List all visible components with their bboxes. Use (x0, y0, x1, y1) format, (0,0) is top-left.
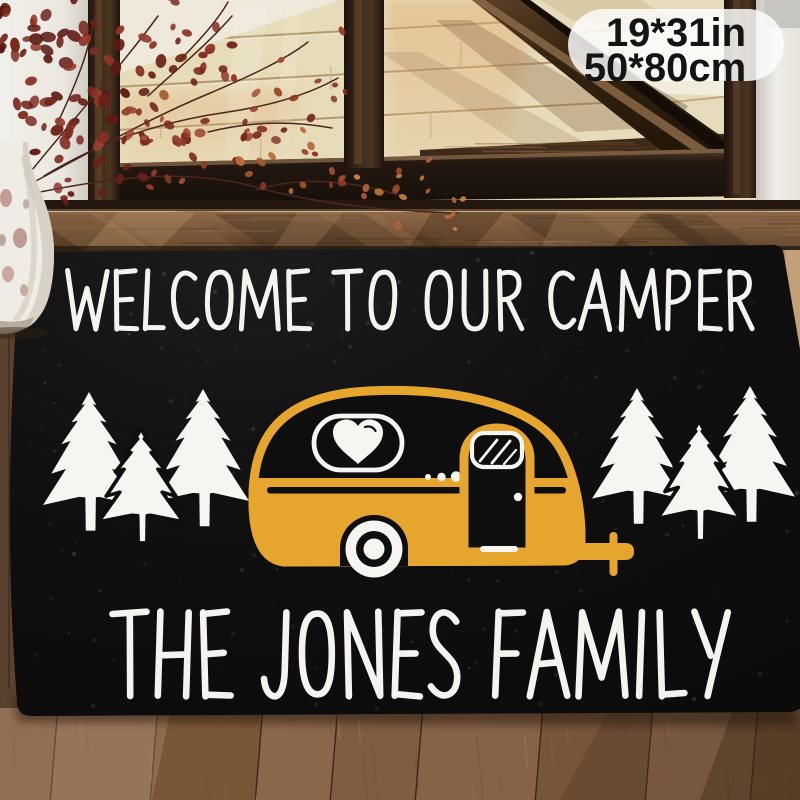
svg-text:50*80cm: 50*80cm (584, 46, 746, 90)
